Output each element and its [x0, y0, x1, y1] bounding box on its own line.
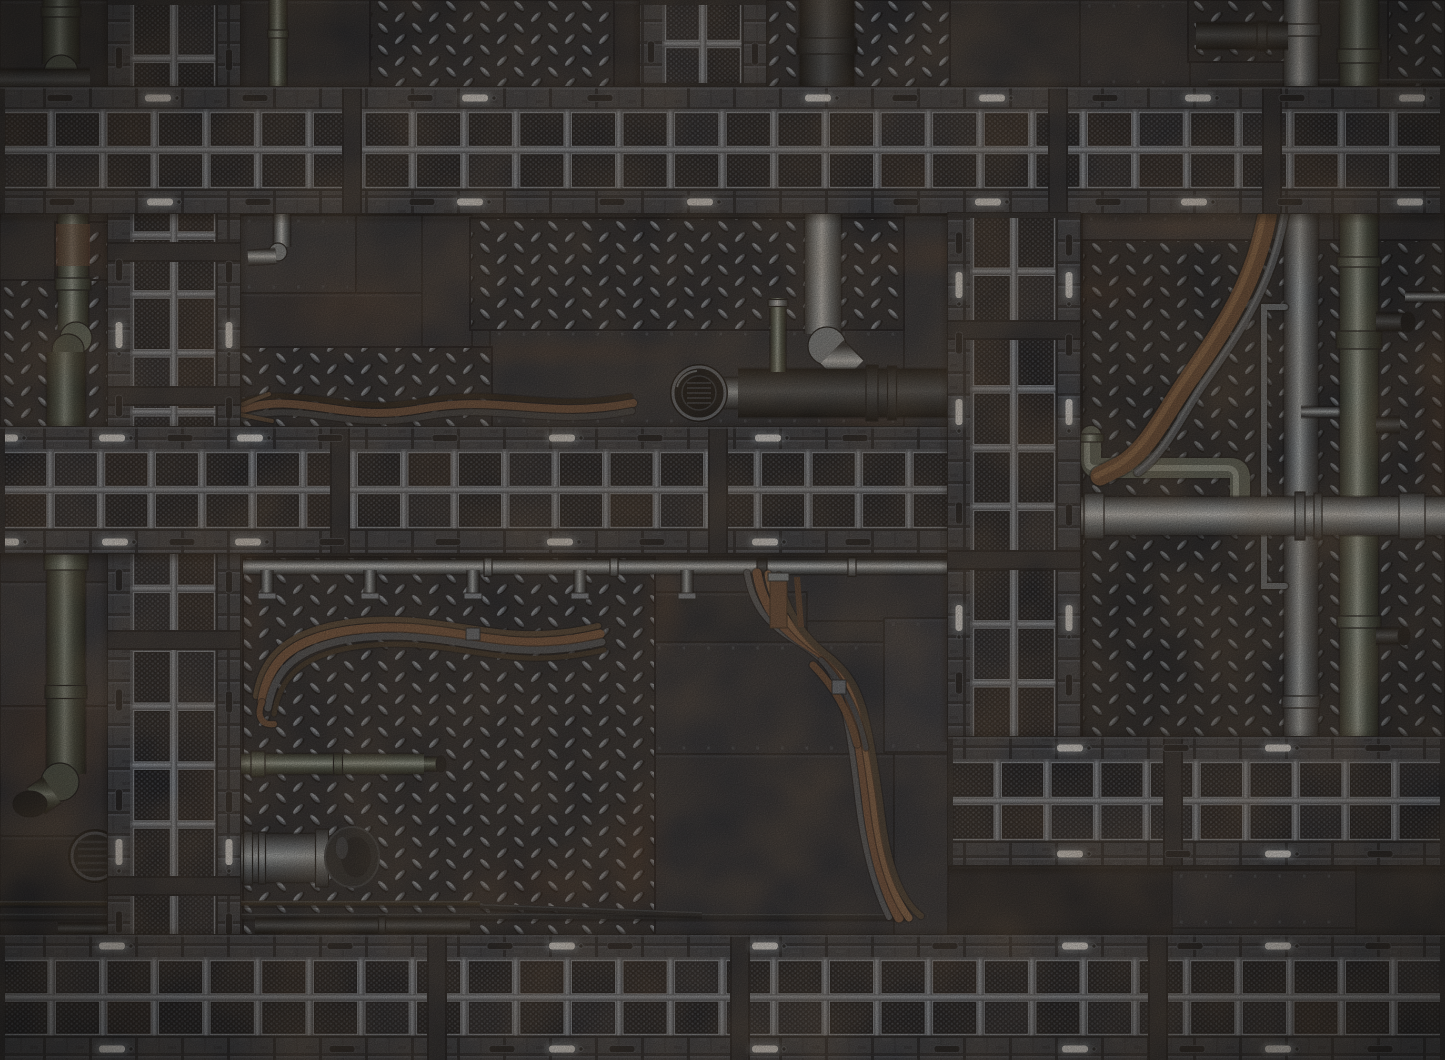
- fx-layer: [0, 0, 1445, 1060]
- game-map-texture: [0, 0, 1445, 1060]
- scene-svg: [0, 0, 1445, 1060]
- vignette-overlay: [0, 0, 1445, 1060]
